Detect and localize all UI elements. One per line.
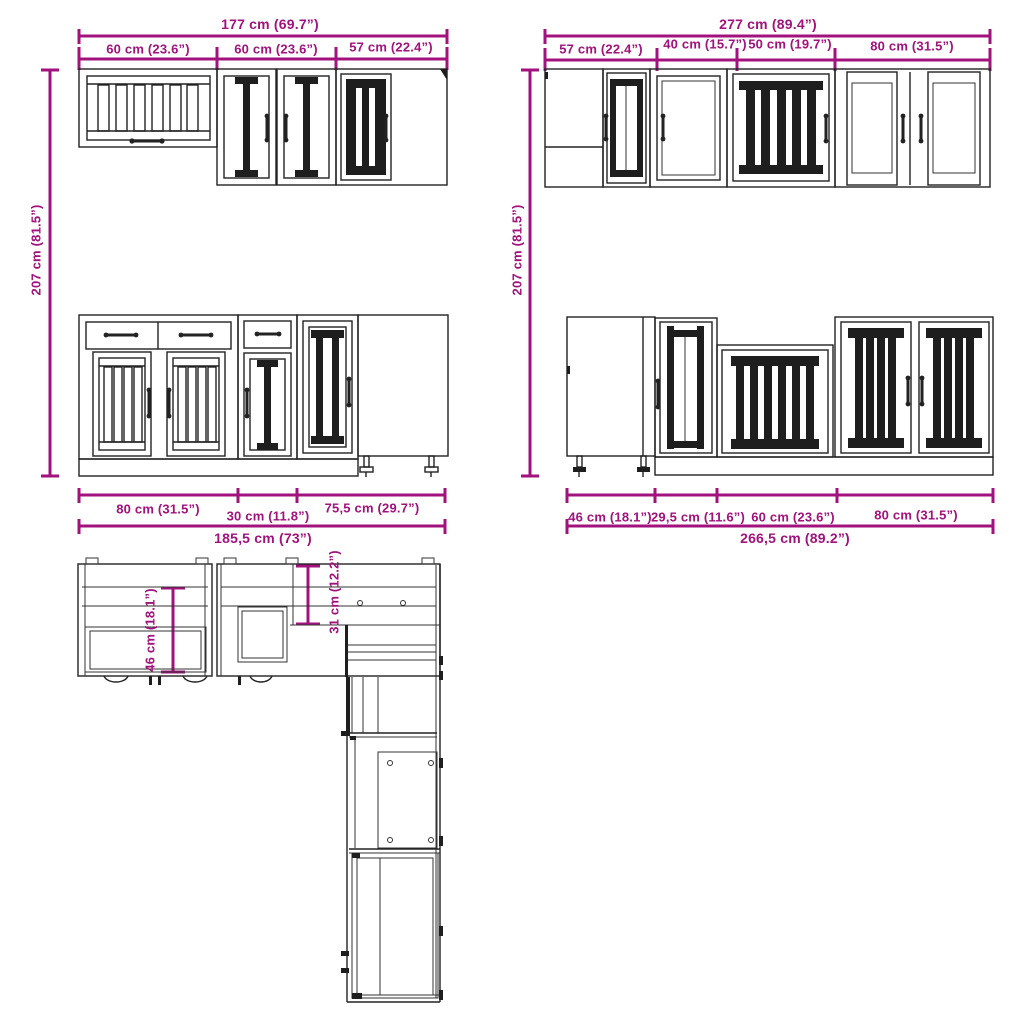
- plan-wall-depth-label: 31 cm (12.2”): [328, 550, 341, 634]
- plan-base-depth-label: 46 cm (18.1”): [144, 588, 157, 672]
- cabinet-dimension-diagram: 177 cm (69.7”) 60 cm (23.6”) 60 cm (23.6…: [0, 0, 1024, 1024]
- base-left-segment-2-label: 30 cm (11.8”): [227, 510, 310, 523]
- wall-left-segment-2-label: 60 cm (23.6”): [234, 43, 318, 56]
- base-right-segment-1-label: 46 cm (18.1”): [568, 511, 652, 524]
- base-left-segment-3-label: 75,5 cm (29.7”): [325, 502, 420, 515]
- base-left-segment-1-label: 80 cm (31.5”): [116, 503, 200, 516]
- right-height-label: 207 cm (81.5”): [511, 205, 524, 296]
- base-right-total-width-label: 266,5 cm (89.2”): [740, 531, 850, 545]
- wall-left-segment-3-label: 57 cm (22.4”): [349, 41, 433, 54]
- wall-right-total-width-label: 277 cm (89.4”): [719, 17, 817, 31]
- left-height-label: 207 cm (81.5”): [30, 205, 43, 296]
- wall-cabinets-left-drawing: [79, 69, 447, 185]
- plan-view-drawing: [78, 558, 443, 1002]
- wall-right-segment-2-label: 40 cm (15.7”): [663, 38, 747, 51]
- wall-left-segment-1-label: 60 cm (23.6”): [106, 43, 190, 56]
- dimension-beam-plan-wall-depth: [296, 566, 320, 624]
- wall-right-segment-4-label: 80 cm (31.5”): [870, 40, 954, 53]
- dimension-line-height-left: [41, 70, 59, 476]
- base-left-total-width-label: 185,5 cm (73”): [214, 531, 312, 545]
- base-right-segment-3-label: 60 cm (23.6”): [751, 511, 835, 524]
- wall-left-total-width-label: 177 cm (69.7”): [221, 17, 319, 31]
- base-cabinets-right-drawing: [567, 317, 993, 477]
- wall-right-segment-1-label: 57 cm (22.4”): [559, 43, 643, 56]
- base-right-segment-4-label: 80 cm (31.5”): [874, 509, 958, 522]
- base-right-segment-2-label: 29,5 cm (11.6”): [651, 511, 745, 524]
- wall-cabinets-right-drawing: [545, 69, 990, 187]
- base-cabinets-left-drawing: [79, 315, 448, 477]
- wall-right-segment-3-label: 50 cm (19.7”): [748, 38, 832, 51]
